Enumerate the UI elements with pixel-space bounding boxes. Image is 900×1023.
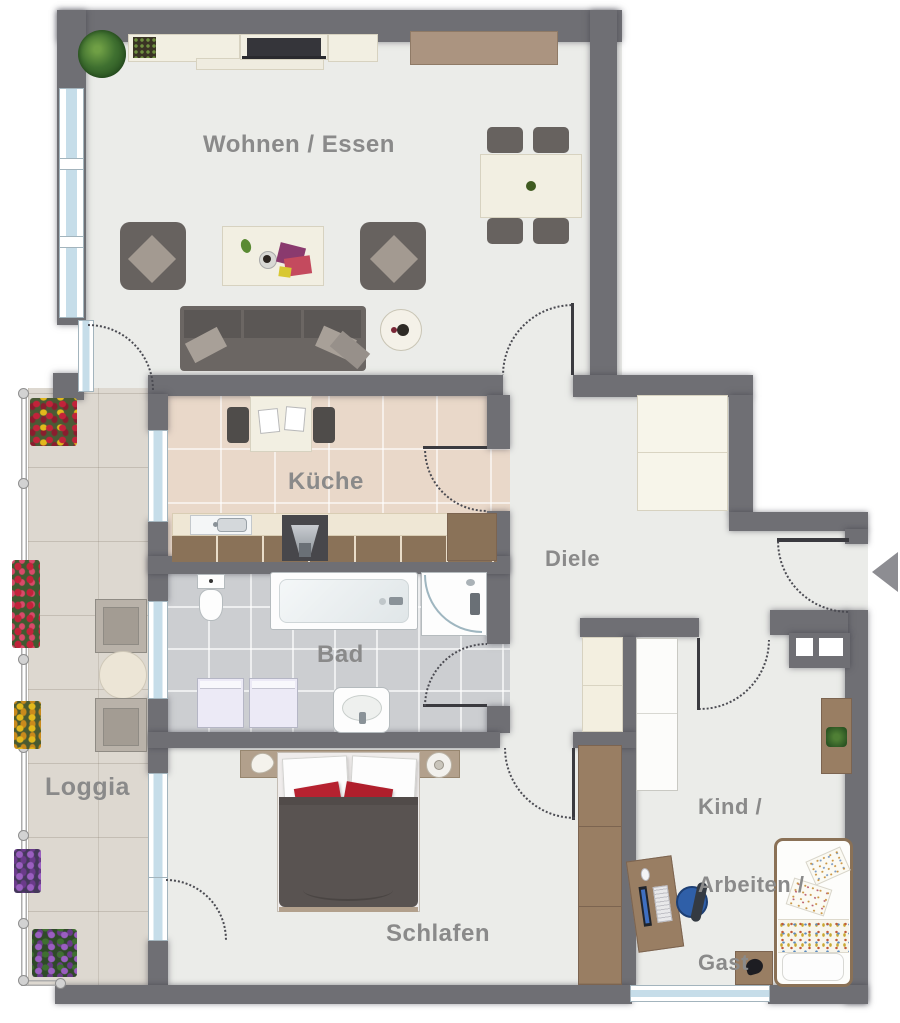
mouse-icon [640, 867, 651, 881]
railing-post [18, 975, 29, 986]
loggia-floor [28, 388, 168, 986]
railing-post [18, 478, 29, 489]
wall-kitchen-right-1 [487, 395, 510, 449]
room-label-bathroom: Bad [317, 641, 364, 669]
sofa-back-cushion [244, 310, 301, 338]
window-divider [59, 158, 84, 170]
loggia-chair [95, 698, 147, 752]
railing-post [18, 654, 29, 665]
dining-chair [533, 218, 569, 244]
railing-post [55, 978, 66, 989]
loggia-chair [95, 599, 147, 653]
kitchen-door-leaf [423, 446, 487, 449]
floorplan: Wohnen / Essen Küche Diele Bad Loggia Sc… [0, 0, 900, 1023]
dining-chair [487, 127, 523, 153]
entry-arrow-icon [872, 552, 898, 592]
magazine-icon [278, 266, 291, 278]
wall-loggia-side-1 [148, 394, 168, 432]
room-label-loggia: Loggia [45, 773, 130, 802]
kitchen-tall-cabinet [447, 513, 497, 561]
sink-basin [217, 518, 247, 532]
outside-mask [622, 0, 900, 375]
monitor-icon [638, 886, 651, 927]
window-divider [59, 236, 84, 248]
toilet [197, 574, 225, 589]
kitchen-sink [190, 515, 252, 535]
room-label-kids: Kind / Arbeiten / Gast [698, 742, 804, 1023]
cabinet-divider [583, 685, 622, 686]
duvet [279, 797, 418, 907]
shower-head-icon [466, 579, 475, 586]
bathroom-window [148, 601, 168, 699]
dryer [249, 678, 298, 728]
kitchen-window [148, 430, 168, 522]
kitchen-chair [227, 407, 249, 443]
stove-hood-duct [299, 543, 311, 557]
shower-fixture-icon [470, 593, 480, 615]
flower-box [12, 560, 40, 648]
room-label-hallway: Diele [545, 546, 600, 572]
wall-loggia-side-4 [148, 940, 168, 986]
side-table-decor [391, 327, 397, 333]
flower-box [32, 929, 77, 977]
wall-bottom-left [55, 985, 632, 1004]
loggia-table [99, 651, 147, 699]
dining-chair [487, 218, 523, 244]
double-bed [277, 752, 420, 912]
wall-shelf-kids [821, 698, 852, 774]
kids-wardrobe [636, 638, 678, 791]
wall-step-h1 [573, 375, 753, 397]
armchair-cushion [370, 235, 418, 283]
place-setting [284, 406, 306, 432]
side-table [380, 309, 422, 351]
tv-soundbar-icon [242, 56, 326, 59]
room-label-living: Wohnen / Essen [203, 131, 395, 159]
bedroom-window [148, 773, 168, 879]
wall-kids-top [580, 618, 699, 637]
wall-living-right [590, 10, 617, 377]
shaft-opening [796, 638, 813, 656]
wall-step-v [729, 395, 753, 514]
railing-post [18, 830, 29, 841]
shower [421, 572, 487, 636]
bathtub-faucet-icon [389, 597, 403, 605]
hall-cabinet [582, 637, 623, 732]
kitchen-stove [282, 515, 328, 561]
side-table-decor [397, 324, 409, 336]
wall-shaft-top [770, 610, 848, 635]
toilet-button [209, 579, 213, 583]
bathtub-drain-icon [379, 598, 386, 605]
closet-divider [638, 452, 727, 453]
railing-post [18, 918, 29, 929]
kitchen-table [250, 396, 312, 452]
bed-footboard [279, 907, 418, 912]
loggia-door-bedroom [148, 877, 168, 941]
plant-box-icon [133, 37, 156, 58]
plant-icon [826, 727, 847, 747]
dining-chair [533, 127, 569, 153]
outside-mask [753, 375, 900, 512]
wall-shaft-block [789, 633, 850, 668]
cabinet [328, 34, 378, 62]
sink-faucet-icon [359, 712, 366, 724]
room-label-bedroom: Schlafen [386, 920, 490, 948]
tv-icon [247, 38, 321, 56]
toilet-bowl [199, 589, 223, 621]
wall-bath-bottom [148, 732, 500, 748]
coffee-cup-icon [263, 255, 271, 263]
flower-box [14, 849, 41, 893]
flower-box [14, 701, 41, 749]
bathtub [270, 572, 418, 630]
flower-box [30, 398, 77, 446]
sofa [180, 306, 366, 371]
washing-machine [197, 678, 244, 728]
wall-shelf [410, 31, 558, 65]
bedroom-wardrobe [578, 745, 622, 985]
keyboard-icon [653, 885, 673, 923]
dryer-panel [252, 681, 295, 689]
armchair-cushion [128, 235, 176, 283]
shaft-opening [819, 638, 843, 656]
railing-post [18, 388, 29, 399]
decor-plate-icon [426, 752, 452, 778]
washer-panel [200, 681, 241, 689]
plant-icon [78, 30, 126, 78]
kitchen-chair [313, 407, 335, 443]
dining-table-decor [526, 181, 536, 191]
wall-kitchen-right-3 [487, 706, 510, 733]
bathroom-sink [333, 687, 390, 733]
armchair [360, 222, 426, 290]
coffee-table [222, 226, 324, 286]
living-window [59, 88, 84, 318]
armchair [120, 222, 186, 290]
room-label-kitchen: Küche [288, 468, 364, 496]
wall-kids-left [622, 637, 636, 986]
hall-closet [637, 395, 728, 511]
wall-kitchen-top [148, 375, 503, 396]
kids-door-leaf [697, 638, 700, 710]
place-setting [258, 408, 280, 434]
sink-faucet-icon [213, 522, 218, 527]
leaf-decor-icon [238, 237, 254, 254]
bed-pillow [805, 846, 850, 885]
